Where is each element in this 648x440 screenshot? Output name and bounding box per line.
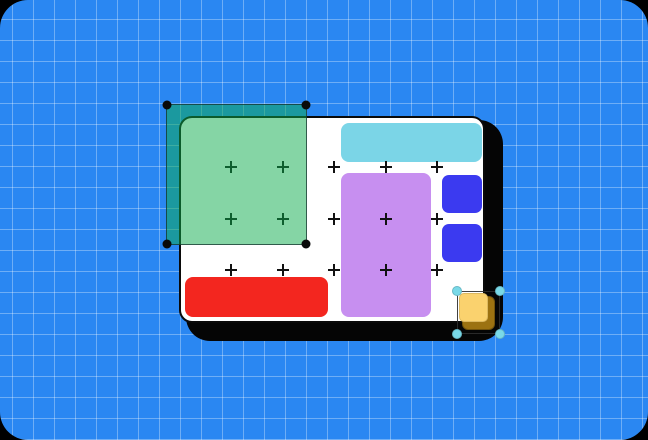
selection-handle-bottom-right-icon[interactable] xyxy=(302,240,311,249)
plus-marker-icon xyxy=(431,161,443,173)
plus-marker-icon xyxy=(380,161,392,173)
selection-handle-bottom-left-icon[interactable] xyxy=(163,240,172,249)
cyan-handle-top-right-icon[interactable] xyxy=(495,286,505,296)
yellow-selection-box xyxy=(457,291,500,334)
plus-marker-icon xyxy=(328,264,340,276)
yellow-square-selection-group[interactable] xyxy=(457,291,500,334)
plus-marker-icon xyxy=(380,213,392,225)
plus-marker-icon xyxy=(380,264,392,276)
plus-marker-icon xyxy=(431,264,443,276)
plus-marker-icon xyxy=(328,213,340,225)
green-shape-selection[interactable] xyxy=(166,104,307,245)
purple-rect-shape[interactable] xyxy=(341,173,431,317)
red-bar-shape[interactable] xyxy=(185,277,328,317)
cyan-handle-bottom-right-icon[interactable] xyxy=(495,329,505,339)
blue-square-shape-bottom[interactable] xyxy=(442,224,482,262)
cyan-handle-top-left-icon[interactable] xyxy=(452,286,462,296)
blue-square-shape-top[interactable] xyxy=(442,175,482,213)
cyan-handle-bottom-left-icon[interactable] xyxy=(452,329,462,339)
plus-marker-icon xyxy=(431,213,443,225)
selection-handle-top-left-icon[interactable] xyxy=(163,101,172,110)
cyan-bar-shape[interactable] xyxy=(341,123,482,162)
plus-marker-icon xyxy=(328,161,340,173)
selection-handle-top-right-icon[interactable] xyxy=(302,101,311,110)
plus-marker-icon xyxy=(277,264,289,276)
plus-marker-icon xyxy=(225,264,237,276)
